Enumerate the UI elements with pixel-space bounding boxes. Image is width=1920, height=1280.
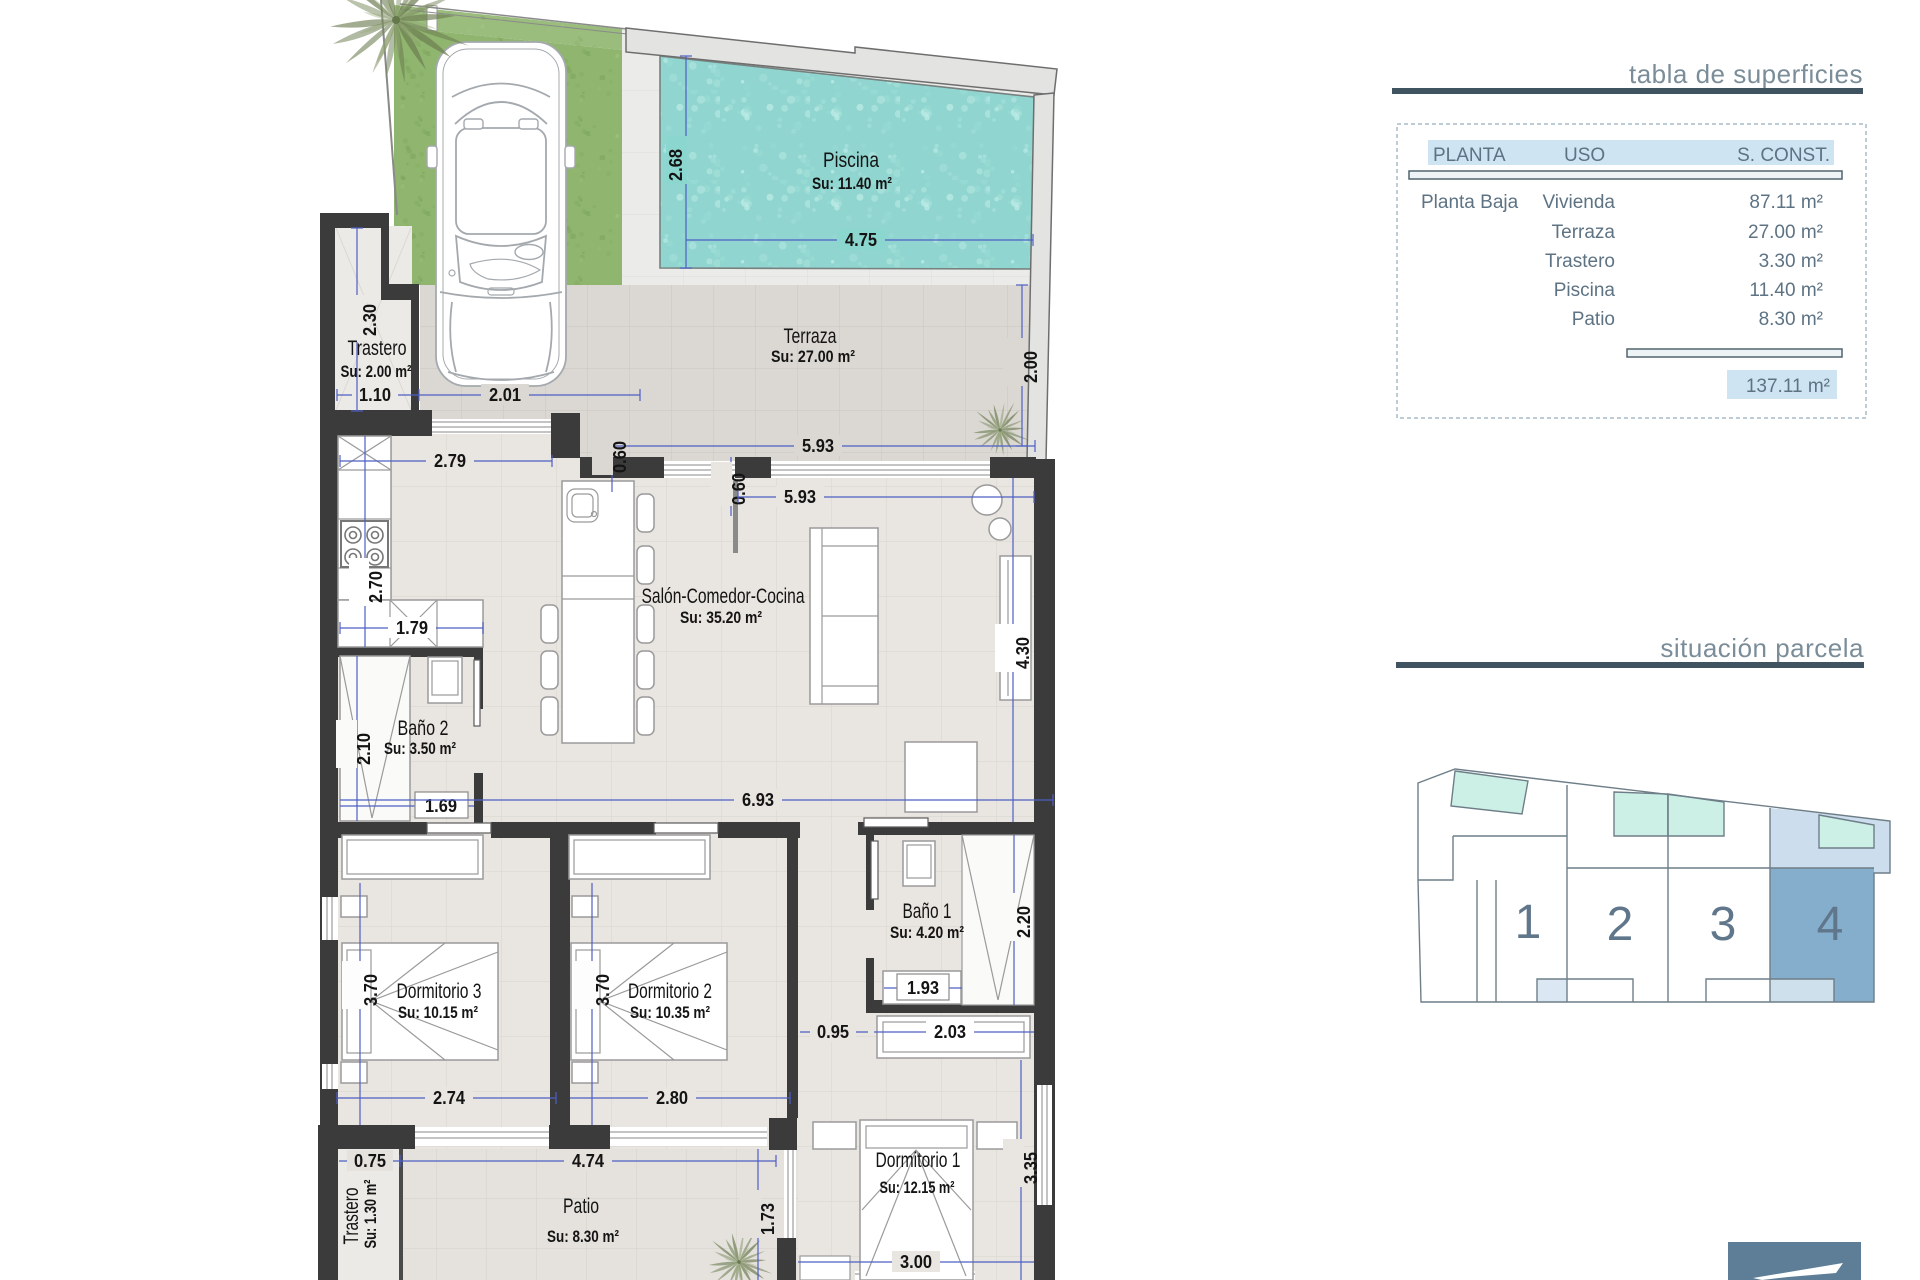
svg-text:Dormitorio 2: Dormitorio 2 [628, 980, 712, 1003]
svg-text:87.11 m²: 87.11 m² [1749, 192, 1823, 213]
svg-text:Su: 8.30 m²: Su: 8.30 m² [547, 1227, 619, 1246]
svg-text:4.75: 4.75 [845, 230, 877, 250]
svg-text:Su: 2.00 m²: Su: 2.00 m² [341, 362, 412, 381]
svg-text:Trastero: Trastero [348, 337, 407, 360]
svg-text:4: 4 [1817, 898, 1844, 951]
svg-text:5.93: 5.93 [802, 436, 834, 456]
svg-text:3.35: 3.35 [1021, 1152, 1041, 1184]
svg-text:Trastero: Trastero [1545, 251, 1615, 272]
svg-text:1.73: 1.73 [758, 1203, 778, 1235]
svg-text:Baño 2: Baño 2 [398, 717, 449, 740]
svg-text:4.74: 4.74 [572, 1151, 604, 1171]
svg-text:0.95: 0.95 [817, 1022, 849, 1042]
svg-text:3.70: 3.70 [593, 974, 613, 1006]
svg-text:PLANTA: PLANTA [1433, 145, 1506, 166]
svg-text:Piscina: Piscina [1554, 280, 1616, 301]
svg-text:Su: 10.35 m²: Su: 10.35 m² [630, 1003, 710, 1022]
svg-text:Baño 1: Baño 1 [903, 900, 952, 923]
svg-text:3.70: 3.70 [361, 974, 381, 1006]
svg-text:2.00: 2.00 [1021, 351, 1041, 383]
svg-text:1.10: 1.10 [359, 385, 391, 405]
svg-text:5.93: 5.93 [784, 487, 816, 507]
svg-text:2.30: 2.30 [360, 304, 380, 336]
svg-text:Vivienda: Vivienda [1542, 192, 1615, 213]
svg-text:2.68: 2.68 [666, 149, 686, 181]
svg-text:3.00: 3.00 [900, 1252, 932, 1272]
svg-text:2: 2 [1607, 898, 1634, 951]
svg-text:6.93: 6.93 [742, 790, 774, 810]
svg-text:Su: 12.15 m²: Su: 12.15 m² [880, 1178, 955, 1197]
svg-text:S. CONST.: S. CONST. [1737, 145, 1830, 166]
svg-text:137.11 m²: 137.11 m² [1746, 376, 1830, 397]
svg-text:Trastero: Trastero [340, 1188, 363, 1245]
svg-text:4.30: 4.30 [1013, 637, 1033, 669]
svg-text:Su: 11.40 m²: Su: 11.40 m² [812, 174, 892, 193]
svg-text:Su: 35.20 m²: Su: 35.20 m² [680, 608, 762, 627]
svg-text:Dormitorio 3: Dormitorio 3 [397, 980, 482, 1003]
svg-text:0.75: 0.75 [354, 1151, 386, 1171]
svg-text:Piscina: Piscina [823, 149, 879, 172]
svg-text:Su: 10.15 m²: Su: 10.15 m² [398, 1003, 478, 1022]
svg-text:2.80: 2.80 [656, 1088, 688, 1108]
svg-text:USO: USO [1564, 145, 1605, 166]
svg-text:2.03: 2.03 [934, 1022, 966, 1042]
svg-text:2.10: 2.10 [354, 733, 374, 765]
svg-text:2.20: 2.20 [1014, 906, 1034, 938]
svg-text:Patio: Patio [1572, 309, 1615, 330]
svg-text:Su: 1.30 m²: Su: 1.30 m² [361, 1179, 380, 1248]
svg-text:Su: 3.50 m²: Su: 3.50 m² [384, 739, 456, 758]
svg-text:Planta Baja: Planta Baja [1421, 192, 1519, 213]
svg-text:tabla de superficies: tabla de superficies [1629, 59, 1863, 89]
svg-text:2.01: 2.01 [489, 385, 521, 405]
svg-text:8.30 m²: 8.30 m² [1759, 309, 1823, 330]
svg-text:Patio: Patio [563, 1195, 599, 1218]
svg-text:0.60: 0.60 [729, 473, 749, 505]
svg-text:Salón-Comedor-Cocina: Salón-Comedor-Cocina [642, 585, 805, 608]
svg-text:1.93: 1.93 [907, 978, 939, 998]
svg-text:Terraza: Terraza [784, 325, 837, 348]
svg-text:2.74: 2.74 [433, 1088, 465, 1108]
svg-text:11.40 m²: 11.40 m² [1749, 280, 1823, 301]
svg-text:2.79: 2.79 [434, 451, 466, 471]
svg-text:3: 3 [1710, 898, 1737, 951]
svg-text:Su: 4.20 m²: Su: 4.20 m² [890, 923, 964, 942]
svg-text:1: 1 [1515, 896, 1542, 949]
svg-text:0.60: 0.60 [610, 441, 630, 473]
svg-text:1.69: 1.69 [425, 796, 457, 816]
svg-text:situación parcela: situación parcela [1660, 633, 1864, 663]
svg-text:Terraza: Terraza [1552, 222, 1616, 243]
svg-text:27.00 m²: 27.00 m² [1748, 222, 1823, 243]
svg-text:Su: 27.00 m²: Su: 27.00 m² [771, 347, 855, 366]
svg-text:2.70: 2.70 [366, 571, 386, 603]
svg-text:Dormitorio 1: Dormitorio 1 [876, 1149, 961, 1172]
svg-text:1.79: 1.79 [396, 618, 428, 638]
svg-text:3.30 m²: 3.30 m² [1759, 251, 1823, 272]
